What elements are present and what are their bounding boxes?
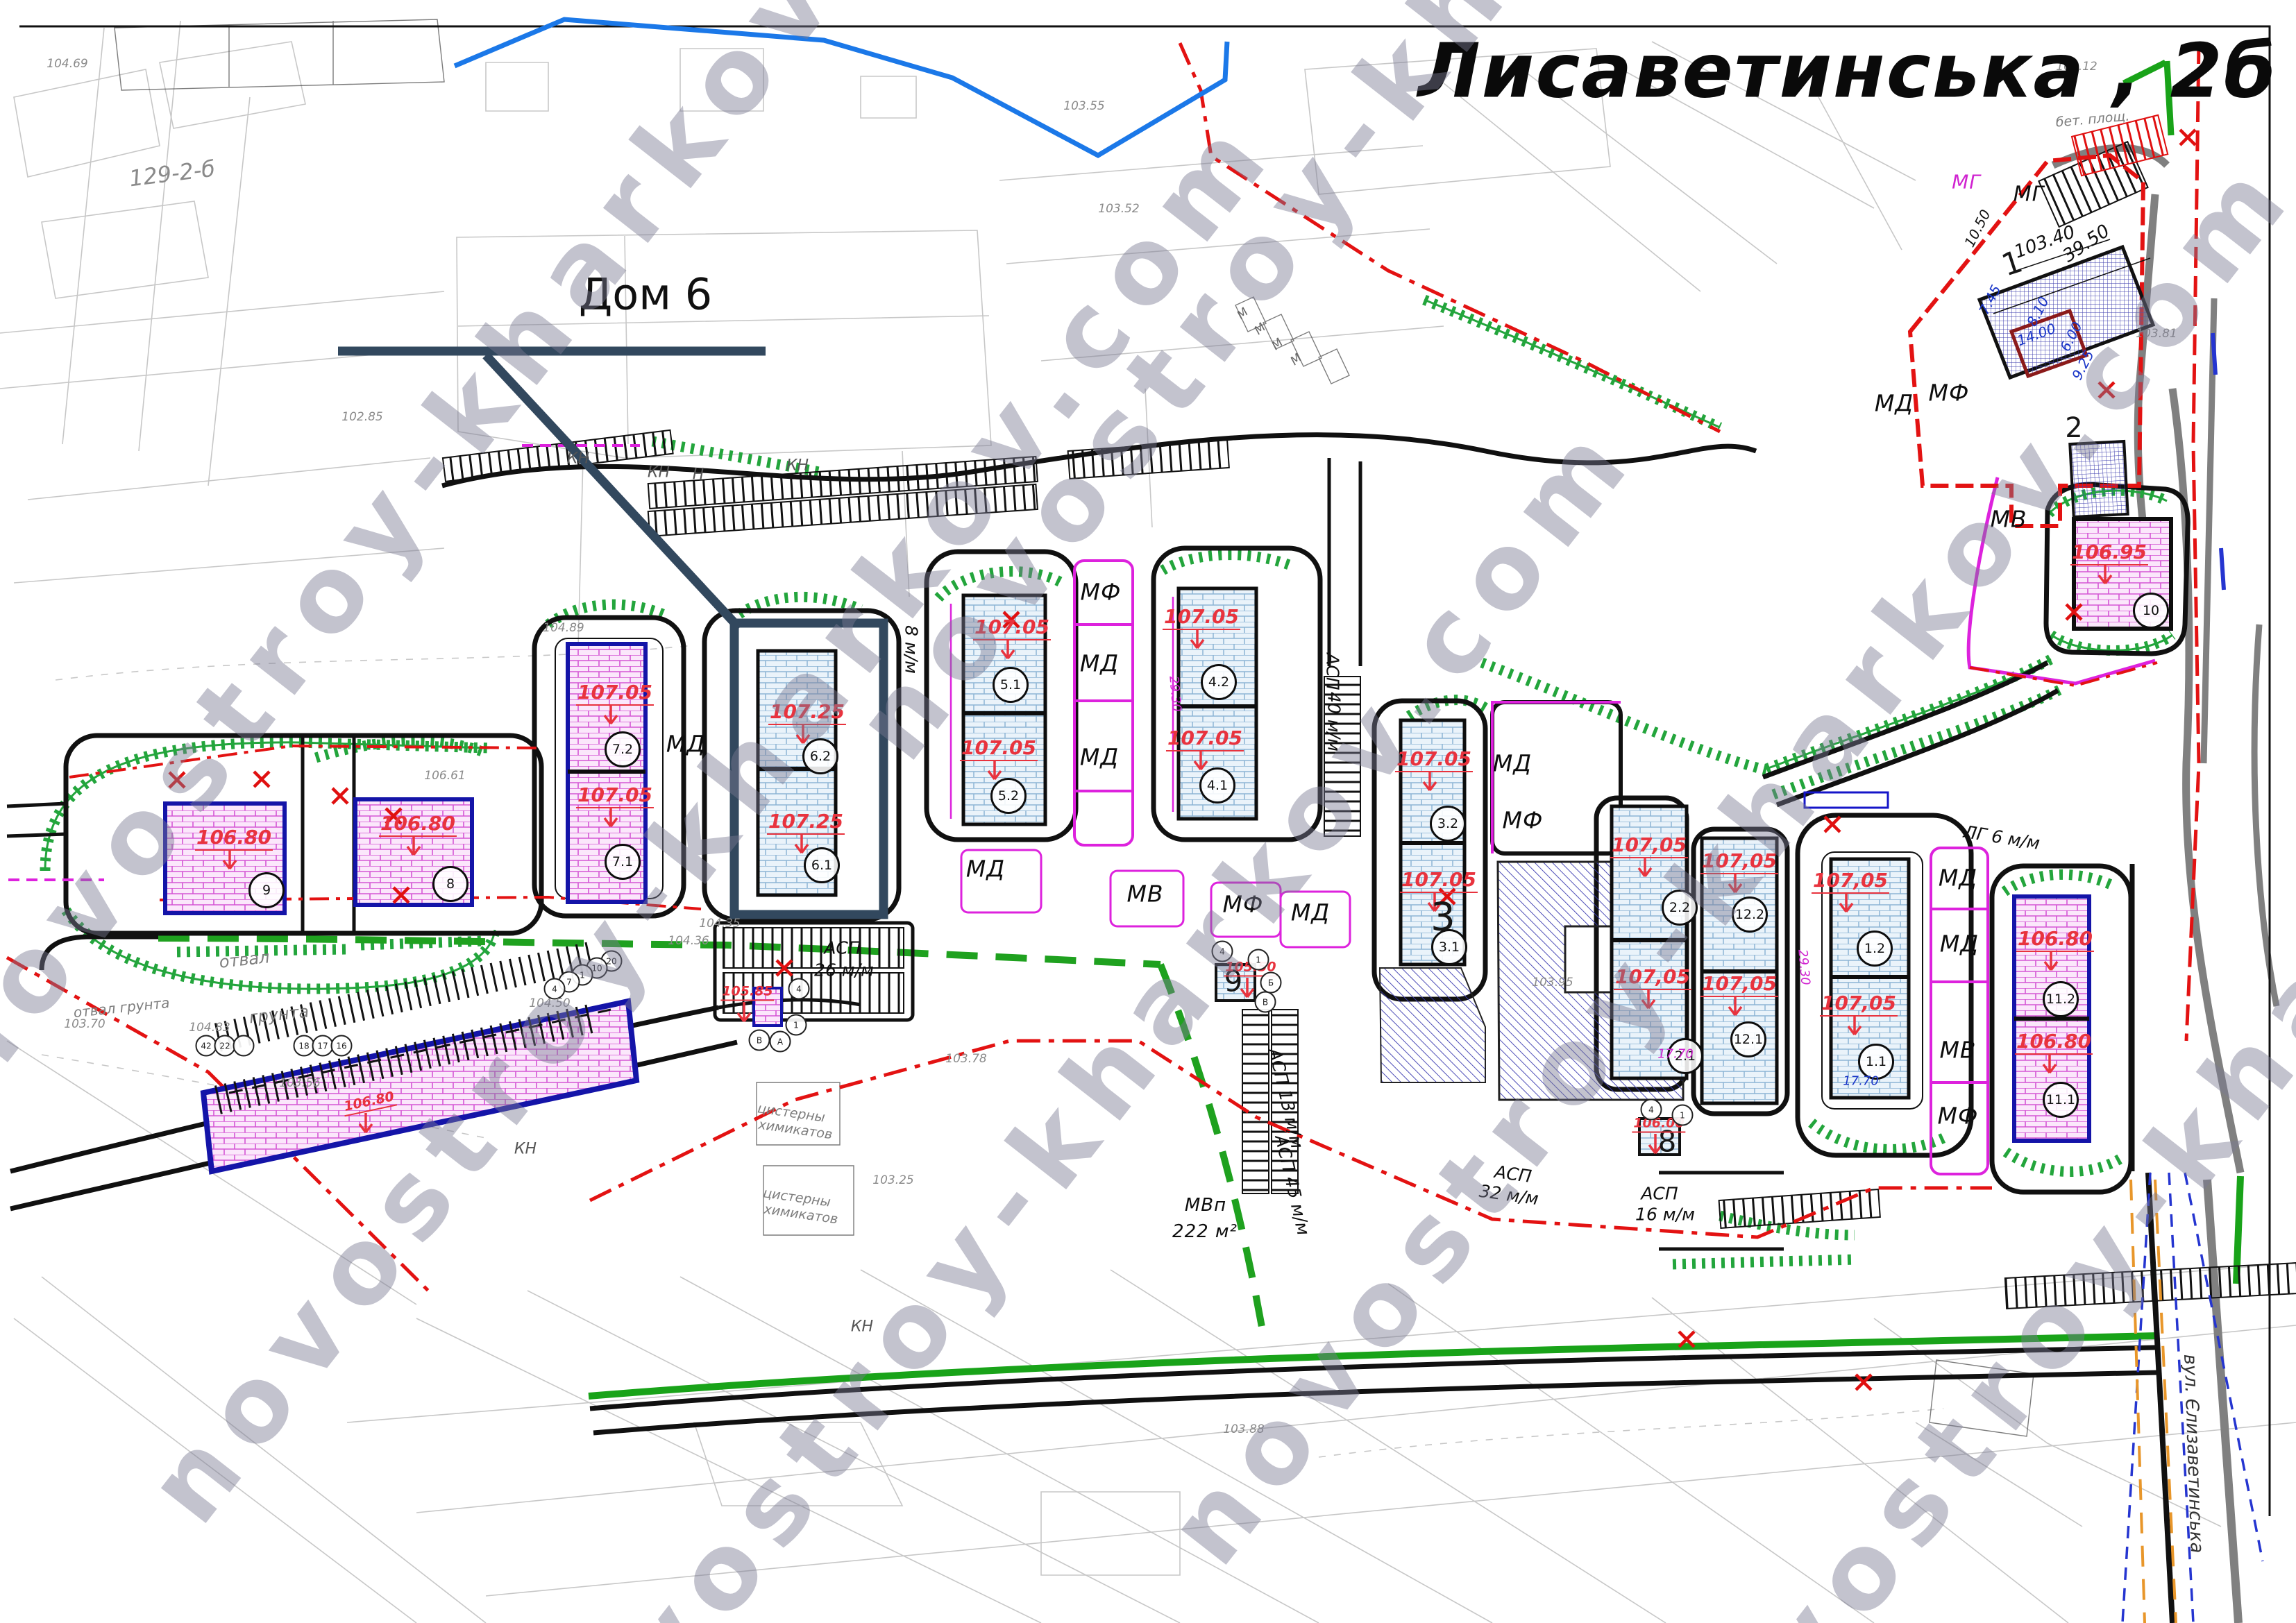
- kn-label: КН: [514, 1141, 537, 1158]
- building-circle-1-2: 1.2: [1857, 931, 1893, 967]
- building-circle-4-2: 4.2: [1201, 664, 1237, 700]
- zone-md: МД: [1875, 390, 1914, 417]
- zone-md: МД: [1291, 899, 1330, 926]
- spot-height: 103.55: [1063, 99, 1104, 113]
- building-circle-5-2: 5.2: [990, 778, 1027, 814]
- dim-17-70: 17.70: [1843, 1074, 1879, 1089]
- zone-md: МД: [1080, 744, 1119, 771]
- elevation-b4-top: 107.05: [1163, 605, 1240, 630]
- zone-md: МД: [666, 731, 705, 758]
- kn-label: КН: [786, 457, 809, 475]
- dim-29-30: 29.30: [1795, 949, 1812, 985]
- spot-height: 104.35: [699, 917, 740, 931]
- axis-1: 1: [1248, 949, 1269, 971]
- zone-mv: МВ: [1126, 881, 1163, 908]
- spot-height: 104.50: [529, 996, 570, 1010]
- axis-v: В: [749, 1030, 770, 1051]
- elevation-b7-top: 107.05: [576, 681, 654, 706]
- site-plan-canvas: [0, 0, 2296, 1623]
- parking-26: 26 м/м: [814, 960, 874, 980]
- axis-1: 1: [1672, 1105, 1694, 1126]
- elevation-b3-top: 107.05: [1395, 747, 1473, 772]
- elevation-b5-top: 107.05: [973, 615, 1051, 640]
- axis-1: 1: [786, 1014, 807, 1036]
- axis-v: В: [1255, 992, 1276, 1013]
- axis-77: [233, 1035, 255, 1057]
- elevation-b10: 106.95: [2070, 541, 2148, 566]
- zone-mf: МФ: [1081, 579, 1122, 606]
- elevation-b8: 106.80: [379, 812, 457, 837]
- spot-height: 104.36: [668, 934, 709, 948]
- building-circle-3-2: 3.2: [1430, 806, 1466, 842]
- elevation-b11-bottom: 106.80: [2015, 1030, 2093, 1055]
- axis-b: Б: [1260, 972, 1282, 994]
- spot-height: 103.88: [1223, 1422, 1264, 1436]
- elevation-b12-bottom: 107,05: [1700, 972, 1778, 997]
- elevation-b11-top: 106.80: [2016, 927, 2094, 952]
- zone-mf: МФ: [1503, 807, 1544, 834]
- building-circle-7-1: 7.1: [605, 844, 641, 880]
- zone-area-222: 222 м²: [1172, 1221, 1238, 1242]
- building-circle-11-2: 11.2: [2043, 981, 2079, 1017]
- elevation-b2-top: 107,05: [1610, 833, 1688, 858]
- spot-height: 103.95: [1532, 976, 1573, 989]
- parking-40: 40 м/м: [1324, 692, 1344, 751]
- elevation-b12-top: 107,05: [1700, 849, 1778, 874]
- axis-a: А: [770, 1031, 791, 1053]
- elevation-b5-bottom: 107.05: [960, 736, 1038, 761]
- elevation-b4-bottom: 107.05: [1166, 726, 1244, 751]
- parking-16: 16 м/м: [1635, 1205, 1695, 1225]
- zone-mg: МГ: [2014, 182, 2045, 207]
- axis-4: 4: [1641, 1099, 1662, 1121]
- plot-buildings: [1980, 239, 2153, 517]
- building-number-3: 3: [1430, 895, 1455, 940]
- dim-29-30: 29.30: [1166, 675, 1183, 712]
- kn-label: КН: [648, 464, 670, 482]
- kn-label: КН: [567, 450, 589, 468]
- spot-height: 104.83: [189, 1021, 230, 1035]
- elevation-b3-bottom: 107.05: [1400, 868, 1478, 893]
- zone-mf: МФ: [1223, 891, 1264, 918]
- spot-height: 103.78: [945, 1052, 986, 1066]
- zone-mv: МВ: [1939, 1037, 1976, 1064]
- spot-height: 103.81: [2136, 327, 2177, 341]
- elevation-b2-bottom: 107,05: [1614, 965, 1691, 990]
- site-plan-page: Лисаветинська , 2б Дом 6 novostroy-khark…: [0, 0, 2296, 1623]
- elevation-b6-bottom: 107.25: [767, 810, 845, 835]
- elevation-b9: 106.80: [195, 826, 273, 851]
- n-label: Н: [693, 466, 704, 484]
- elevation-b6-top: 107.25: [768, 700, 846, 725]
- building-circle-6-1: 6.1: [804, 847, 840, 883]
- zone-md: МД: [1940, 931, 1979, 958]
- building-circle-10: 10: [2133, 593, 2169, 629]
- green-hedges: [45, 61, 2240, 1396]
- plot-building-number-2: 2: [2065, 412, 2082, 444]
- zone-mf: МФ: [1938, 1103, 1979, 1130]
- zone-mv: МВ: [1990, 506, 2027, 533]
- zone-mvp: МВп: [1185, 1195, 1226, 1216]
- spot-height: 103.70: [64, 1017, 105, 1031]
- spot-height: 103.56: [279, 1076, 320, 1090]
- building-circle-12-2: 12.2: [1732, 897, 1768, 933]
- parking-asp: АСП: [1323, 653, 1343, 690]
- building-circle-5-1: 5.1: [993, 667, 1029, 703]
- elevation-b7-bottom: 107.05: [576, 783, 654, 808]
- dim-17-70: 17.70: [1657, 1047, 1694, 1062]
- spot-height: 104.89: [543, 621, 584, 635]
- zone-md: МД: [1493, 750, 1532, 777]
- parking-8: 8 м/м: [902, 625, 922, 674]
- building-circle-7-2: 7.2: [605, 731, 641, 767]
- building-circle-2-2: 2.2: [1662, 890, 1698, 926]
- building-circle-12-1: 12.1: [1730, 1021, 1766, 1057]
- roads: [7, 26, 2270, 1623]
- axis-4: 4: [788, 978, 810, 1000]
- spot-height: 102.85: [341, 410, 382, 424]
- building-circle-9: 9: [248, 872, 285, 908]
- spot-height: 103.25: [872, 1173, 913, 1187]
- zone-md: МД: [1080, 650, 1119, 677]
- parking-asp: АСП: [824, 938, 861, 958]
- axis-4: 4: [1212, 941, 1233, 962]
- spot-height: 106.61: [424, 769, 465, 783]
- zone-md: МД: [1939, 865, 1977, 892]
- building-circle-11-1: 11.1: [2043, 1082, 2079, 1118]
- zone-mg: МГ: [1952, 171, 1981, 194]
- elevation-trafo-small: 105.85: [720, 984, 774, 1001]
- spot-height: 103.52: [1098, 202, 1139, 216]
- kn-label: КН: [851, 1318, 873, 1336]
- house6-callout-label: Дом 6: [579, 269, 712, 320]
- building-circle-4-1: 4.1: [1199, 767, 1235, 804]
- axis-16: 16: [331, 1035, 353, 1057]
- parking-asp: АСП: [1641, 1184, 1678, 1204]
- spot-height: 104.69: [47, 57, 87, 71]
- zone-md: МД: [966, 856, 1005, 883]
- plan-title: Лисаветинська , 2б: [1418, 28, 2277, 115]
- elevation-b1-top: 107,05: [1812, 869, 1889, 894]
- zone-mf: МФ: [1929, 380, 1970, 407]
- elevation-b1-bottom: 107,05: [1820, 992, 1898, 1017]
- building-circle-8: 8: [432, 866, 469, 902]
- building-circle-6-2: 6.2: [802, 738, 838, 774]
